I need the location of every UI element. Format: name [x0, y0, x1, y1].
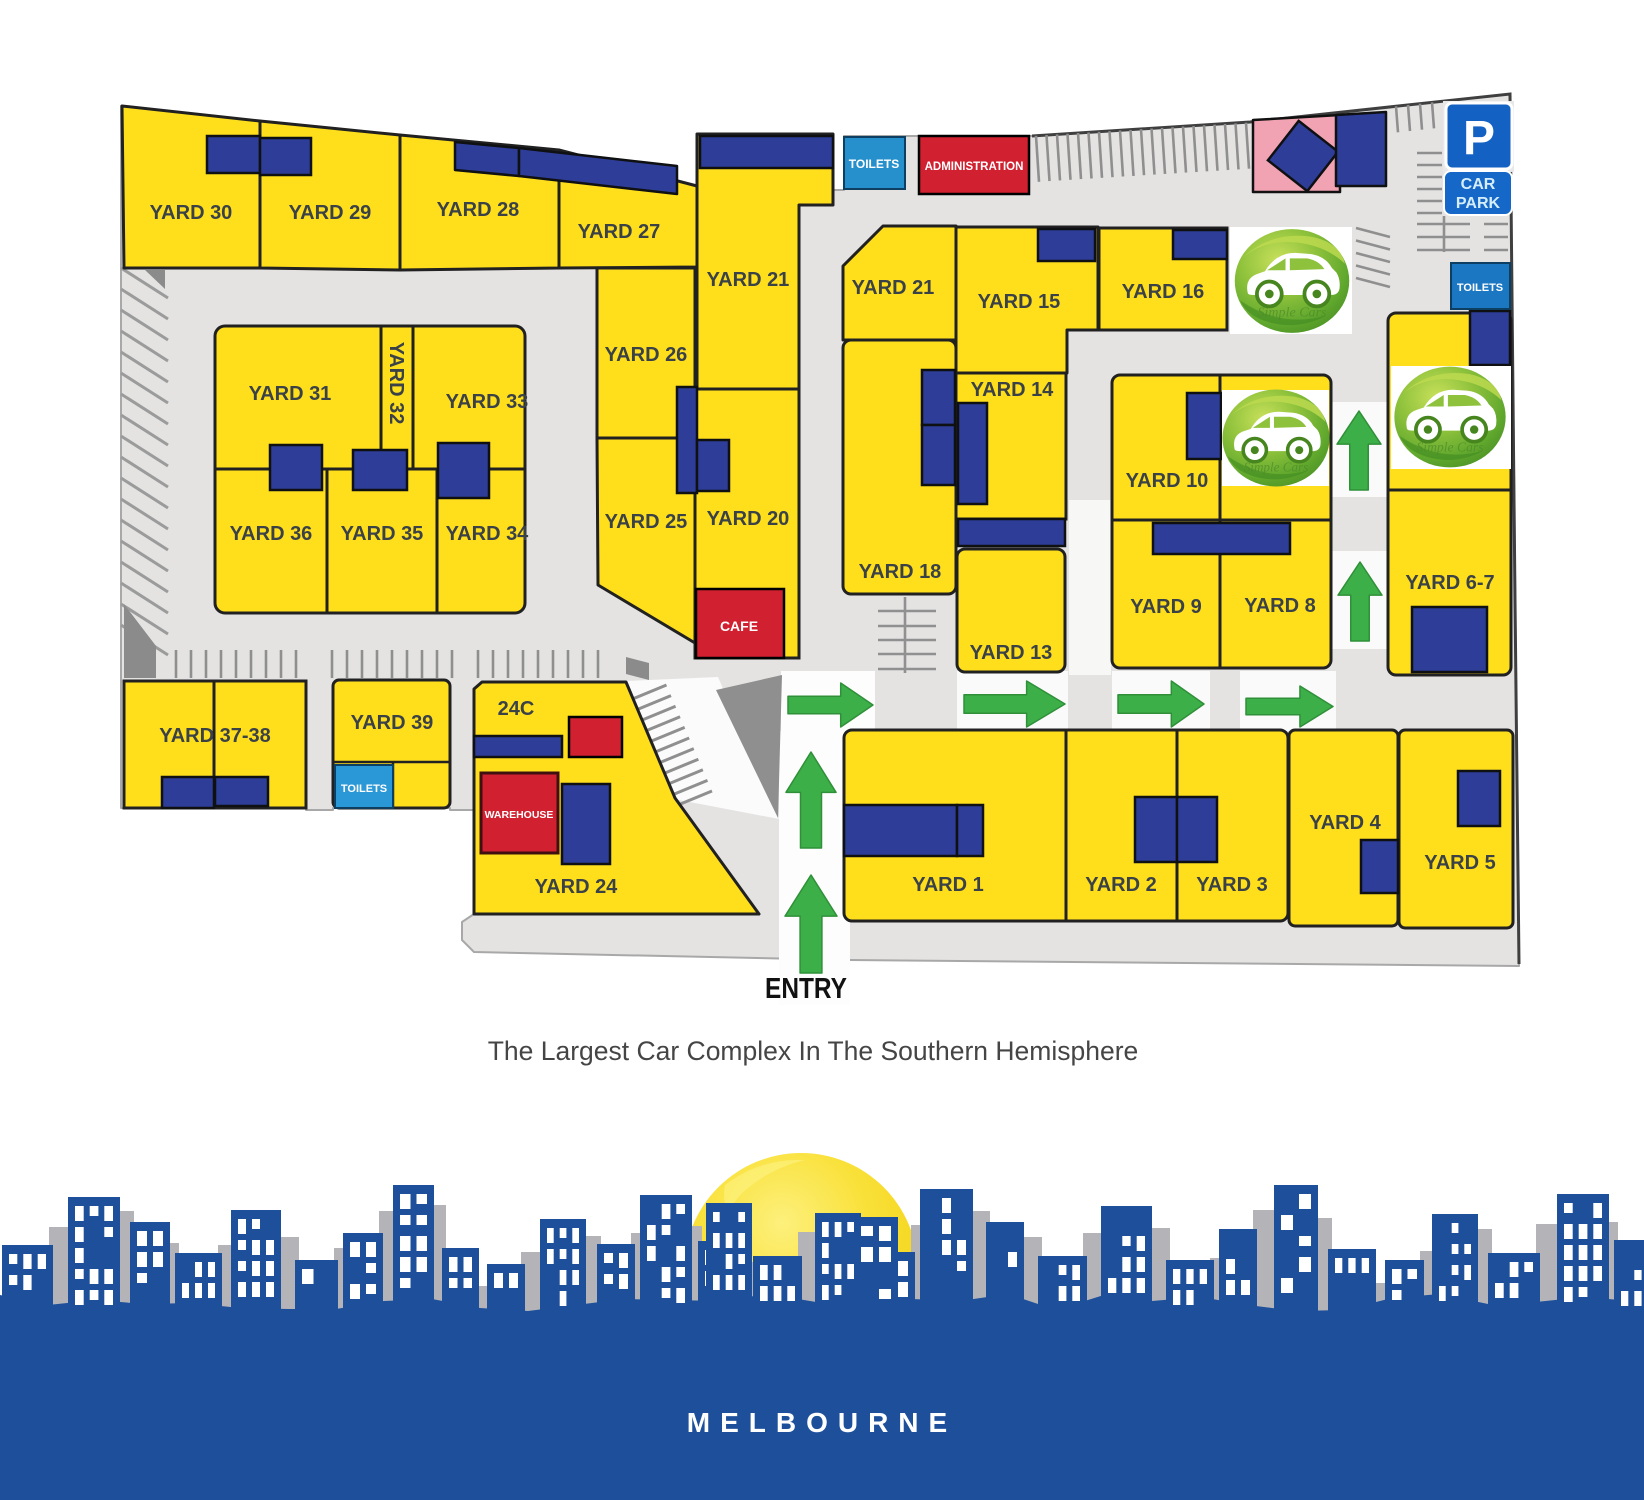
svg-text:YARD 32: YARD 32	[385, 342, 407, 425]
svg-text:YARD 34: YARD 34	[446, 523, 530, 545]
svg-text:YARD 29: YARD 29	[289, 202, 372, 224]
svg-text:YARD 9: YARD 9	[1130, 596, 1202, 618]
svg-text:YARD 39: YARD 39	[351, 712, 434, 734]
svg-text:YARD 8: YARD 8	[1244, 595, 1316, 617]
svg-text:YARD 16: YARD 16	[1122, 281, 1205, 303]
svg-text:WAREHOUSE: WAREHOUSE	[485, 809, 554, 821]
svg-text:YARD 2: YARD 2	[1085, 874, 1157, 896]
svg-text:MELBOURNE: MELBOURNE	[687, 1407, 957, 1438]
svg-text:YARD 18: YARD 18	[859, 561, 942, 583]
svg-text:YARD 14: YARD 14	[971, 379, 1055, 401]
svg-text:YARD 20: YARD 20	[707, 508, 790, 530]
svg-text:TOILETS: TOILETS	[1457, 282, 1503, 294]
svg-text:The Largest Car Complex In The: The Largest Car Complex In The Southern …	[488, 1036, 1139, 1066]
svg-text:TOILETS: TOILETS	[341, 783, 387, 795]
svg-text:YARD 15: YARD 15	[978, 291, 1061, 313]
svg-text:CAR: CAR	[1461, 176, 1496, 193]
svg-text:YARD 10: YARD 10	[1126, 470, 1209, 492]
svg-text:TOILETS: TOILETS	[849, 157, 899, 171]
svg-text:YARD 37-38: YARD 37-38	[159, 725, 271, 747]
svg-text:YARD 6-7: YARD 6-7	[1405, 572, 1494, 594]
svg-text:YARD 26: YARD 26	[605, 344, 688, 366]
svg-text:YARD 30: YARD 30	[150, 202, 233, 224]
svg-text:YARD 25: YARD 25	[605, 511, 688, 533]
svg-text:YARD 21: YARD 21	[707, 269, 790, 291]
svg-text:P: P	[1463, 112, 1495, 165]
svg-text:YARD 36: YARD 36	[230, 523, 313, 545]
svg-text:YARD 4: YARD 4	[1309, 812, 1381, 834]
svg-text:YARD 27: YARD 27	[578, 221, 661, 243]
svg-text:CAFE: CAFE	[720, 618, 758, 634]
svg-text:YARD 3: YARD 3	[1196, 874, 1268, 896]
svg-text:YARD 33: YARD 33	[446, 391, 529, 413]
svg-text:YARD 21: YARD 21	[852, 277, 935, 299]
svg-text:YARD 24: YARD 24	[535, 876, 619, 898]
svg-text:PARK: PARK	[1456, 195, 1501, 212]
svg-text:ENTRY: ENTRY	[765, 973, 847, 1005]
svg-text:YARD 35: YARD 35	[341, 523, 424, 545]
svg-text:YARD 5: YARD 5	[1424, 852, 1496, 874]
svg-text:YARD 1: YARD 1	[912, 874, 984, 896]
svg-text:24C: 24C	[498, 698, 535, 720]
svg-text:YARD 28: YARD 28	[437, 199, 520, 221]
svg-text:ADMINISTRATION: ADMINISTRATION	[925, 161, 1024, 173]
svg-text:YARD 31: YARD 31	[249, 383, 332, 405]
svg-text:YARD 13: YARD 13	[970, 642, 1053, 664]
